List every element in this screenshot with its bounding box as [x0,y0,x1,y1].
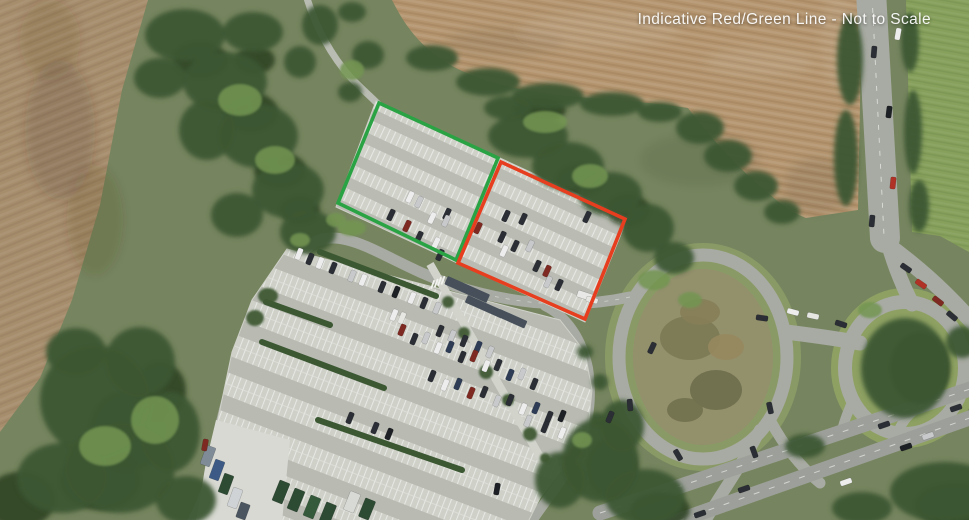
tree [572,432,592,448]
tree [676,112,724,144]
tree [904,90,922,174]
tree [785,434,825,458]
tree [218,84,262,116]
tree [145,9,225,61]
tree [338,2,366,22]
tree [577,345,593,359]
tree [600,400,644,452]
aerial-photo-canvas [0,0,969,520]
scrub-patch [708,334,744,360]
car [627,399,634,411]
tree [861,318,949,418]
tree [592,374,608,390]
tree [211,193,263,237]
scrub-patch [667,398,703,422]
scale-disclaimer-text: Indicative Red/Green Line - Not to Scale [638,11,931,29]
tree [638,270,670,290]
car [869,215,876,227]
tree [255,146,295,174]
tree [258,288,278,304]
tree [734,171,778,201]
tree [302,5,338,45]
tree [105,327,175,397]
tree [764,200,800,224]
tree [290,233,310,247]
tree [834,110,858,206]
tree [456,68,520,96]
tree [46,328,106,376]
tree [131,396,179,444]
tree [858,302,882,318]
tree [484,96,532,120]
tree [442,296,454,308]
tree [246,310,264,326]
tree [909,180,929,232]
tree [79,426,131,466]
tree [284,46,316,78]
tree [338,82,362,102]
tree [638,102,682,122]
tree [406,45,458,71]
tree [589,412,605,428]
tree [523,427,537,441]
aerial-site-plan: Indicative Red/Green Line - Not to Scale [0,0,969,520]
tree [580,92,644,116]
tree [340,60,364,80]
tree [523,111,567,133]
tree [540,453,550,463]
tree [134,58,186,98]
car [886,106,893,119]
tree [654,242,694,274]
tree [704,140,752,172]
car [890,177,897,190]
tree [326,213,346,227]
tree [678,292,702,308]
car [871,46,878,58]
tree [223,12,283,52]
tree [572,164,608,188]
north-road [871,0,885,238]
